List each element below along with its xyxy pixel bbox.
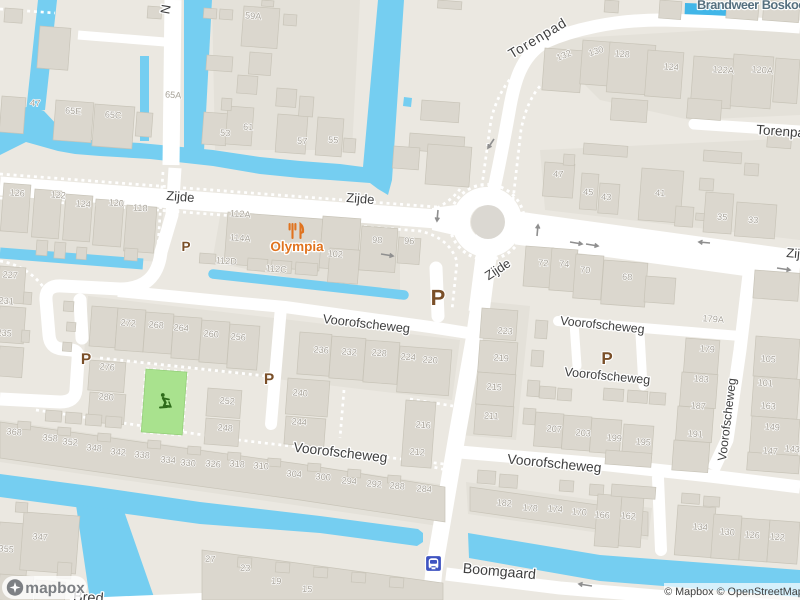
svg-text:272: 272 <box>120 317 136 328</box>
svg-text:268: 268 <box>148 319 164 330</box>
svg-text:65C: 65C <box>104 109 122 120</box>
svg-text:128: 128 <box>614 48 630 59</box>
svg-text:47: 47 <box>553 169 564 180</box>
svg-text:318: 318 <box>229 458 245 469</box>
svg-text:195: 195 <box>635 436 651 447</box>
svg-text:112C: 112C <box>265 263 287 275</box>
svg-text:mapbox: mapbox <box>25 580 85 597</box>
svg-text:72: 72 <box>538 258 549 269</box>
svg-text:35: 35 <box>717 212 728 223</box>
svg-text:232: 232 <box>341 346 357 357</box>
svg-text:61: 61 <box>243 122 254 133</box>
svg-text:41: 41 <box>655 188 666 199</box>
svg-text:P: P <box>81 351 91 368</box>
svg-text:33: 33 <box>748 215 759 226</box>
svg-text:126: 126 <box>744 529 760 540</box>
svg-text:118: 118 <box>133 202 148 213</box>
svg-text:231: 231 <box>0 295 14 306</box>
svg-text:352: 352 <box>62 436 78 447</box>
svg-text:244: 244 <box>291 416 307 427</box>
svg-text:211: 211 <box>484 410 499 421</box>
svg-text:348: 348 <box>86 442 102 453</box>
svg-text:179: 179 <box>699 343 715 354</box>
svg-text:120: 120 <box>108 197 124 208</box>
svg-text:179A: 179A <box>702 313 725 325</box>
svg-text:70: 70 <box>580 265 591 276</box>
svg-text:276: 276 <box>99 361 115 372</box>
svg-text:358: 358 <box>42 432 58 443</box>
svg-text:220: 220 <box>422 354 438 365</box>
svg-text:203: 203 <box>575 427 591 438</box>
svg-text:182: 182 <box>496 497 512 508</box>
svg-text:53: 53 <box>220 128 231 139</box>
svg-text:65E: 65E <box>65 105 82 116</box>
svg-text:163: 163 <box>760 400 776 411</box>
svg-text:191: 191 <box>687 428 703 439</box>
svg-text:252: 252 <box>219 395 235 406</box>
svg-text:68: 68 <box>622 272 633 283</box>
svg-text:288: 288 <box>389 480 405 491</box>
svg-text:292: 292 <box>366 478 382 489</box>
svg-text:101: 101 <box>757 377 773 388</box>
svg-text:23: 23 <box>240 563 251 574</box>
svg-text:© Mapbox © OpenStreetMap: © Mapbox © OpenStreetMap <box>664 586 800 598</box>
svg-text:112A: 112A <box>229 208 251 220</box>
svg-text:124: 124 <box>75 198 91 209</box>
svg-text:55: 55 <box>328 135 339 146</box>
svg-text:105: 105 <box>760 353 776 364</box>
svg-text:216: 216 <box>415 419 431 430</box>
svg-text:Brandweer Boskoop: Brandweer Boskoop <box>697 0 800 12</box>
svg-text:120A: 120A <box>751 64 774 76</box>
svg-text:334: 334 <box>160 454 176 465</box>
svg-text:96: 96 <box>404 236 415 247</box>
svg-text:347: 347 <box>32 531 48 542</box>
svg-text:Olympia: Olympia <box>270 239 324 254</box>
svg-text:260: 260 <box>203 328 219 339</box>
svg-text:59A: 59A <box>245 10 263 21</box>
svg-text:122A: 122A <box>712 64 735 76</box>
svg-text:130: 130 <box>719 526 735 537</box>
svg-text:280: 280 <box>98 391 114 402</box>
svg-text:227: 227 <box>2 269 18 280</box>
svg-text:Zijde: Zijde <box>786 245 800 262</box>
svg-text:256: 256 <box>230 331 246 342</box>
svg-text:310: 310 <box>253 460 269 471</box>
svg-text:149: 149 <box>764 421 780 432</box>
svg-text:219: 219 <box>493 352 509 363</box>
svg-text:326: 326 <box>205 458 221 469</box>
svg-text:Zijde: Zijde <box>346 190 375 207</box>
svg-text:166: 166 <box>594 509 610 520</box>
svg-text:112D: 112D <box>215 255 237 267</box>
svg-text:236: 236 <box>313 344 329 355</box>
svg-text:284: 284 <box>416 483 432 494</box>
svg-text:368: 368 <box>6 426 22 437</box>
svg-text:215: 215 <box>486 381 502 392</box>
svg-text:143: 143 <box>784 443 800 454</box>
svg-text:45: 45 <box>583 187 594 198</box>
svg-text:15: 15 <box>302 584 313 595</box>
svg-text:170: 170 <box>571 506 587 517</box>
svg-text:P: P <box>264 371 274 388</box>
svg-text:27: 27 <box>205 554 216 565</box>
svg-text:43: 43 <box>601 192 612 203</box>
svg-text:Zijde: Zijde <box>166 188 195 205</box>
svg-text:65A: 65A <box>165 89 183 100</box>
svg-text:355: 355 <box>0 543 14 554</box>
svg-text:57: 57 <box>297 136 308 147</box>
svg-text:178: 178 <box>522 502 538 513</box>
svg-text:102: 102 <box>327 248 343 259</box>
svg-text:114A: 114A <box>229 232 251 244</box>
svg-text:228: 228 <box>371 347 387 358</box>
svg-text:19: 19 <box>271 576 282 587</box>
svg-text:124: 124 <box>663 61 679 72</box>
svg-text:224: 224 <box>400 351 416 362</box>
svg-text:187: 187 <box>690 400 706 411</box>
svg-text:162: 162 <box>620 510 636 521</box>
svg-text:212: 212 <box>409 446 425 457</box>
svg-text:174: 174 <box>547 503 563 514</box>
svg-text:330: 330 <box>180 457 196 468</box>
svg-text:300: 300 <box>315 471 331 482</box>
svg-text:134: 134 <box>692 521 708 532</box>
svg-text:248: 248 <box>217 422 233 433</box>
svg-text:207: 207 <box>546 423 562 434</box>
svg-text:47: 47 <box>30 98 41 109</box>
svg-text:304: 304 <box>286 468 302 479</box>
svg-text:126: 126 <box>9 187 25 198</box>
svg-text:240: 240 <box>292 387 308 398</box>
svg-text:294: 294 <box>341 475 357 486</box>
svg-text:74: 74 <box>559 259 570 270</box>
svg-text:199: 199 <box>606 432 622 443</box>
svg-text:122: 122 <box>769 531 785 542</box>
svg-text:P: P <box>601 349 612 368</box>
svg-text:183: 183 <box>693 373 709 384</box>
svg-text:147: 147 <box>762 445 778 456</box>
svg-text:235: 235 <box>0 327 12 338</box>
svg-text:122: 122 <box>50 189 66 200</box>
svg-text:98: 98 <box>372 235 383 246</box>
svg-text:223: 223 <box>497 325 513 336</box>
svg-text:342: 342 <box>110 446 126 457</box>
svg-text:P: P <box>181 239 190 254</box>
svg-text:264: 264 <box>173 322 189 333</box>
svg-text:338: 338 <box>134 449 150 460</box>
svg-text:P: P <box>431 285 446 310</box>
